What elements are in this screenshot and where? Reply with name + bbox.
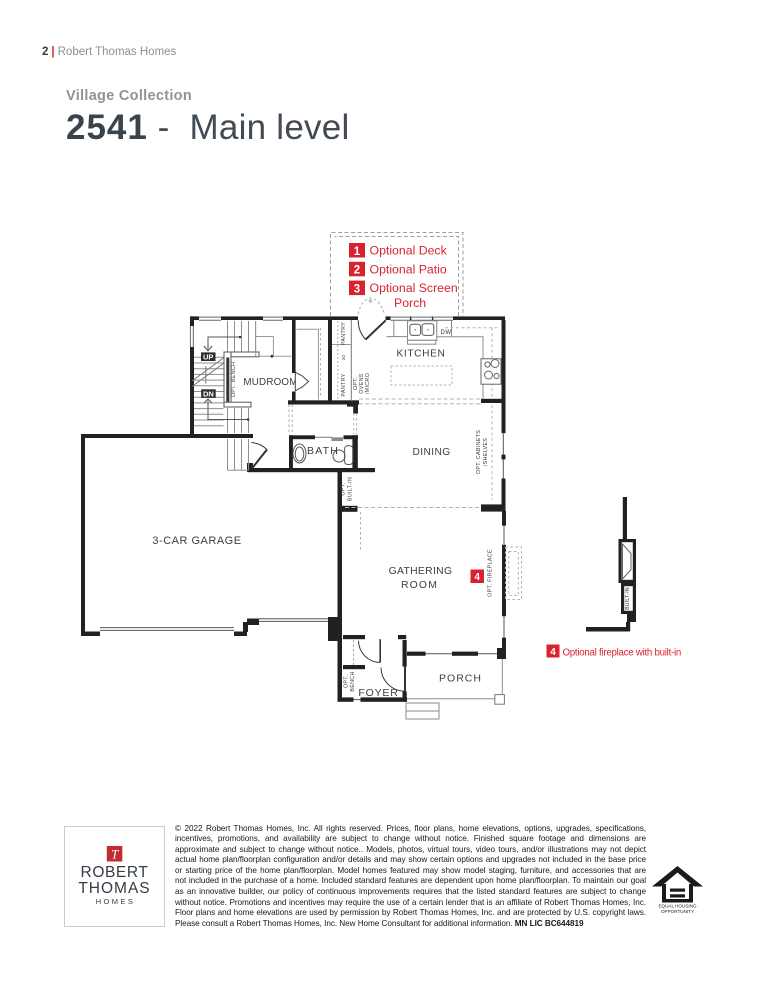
svg-text:UP: UP: [203, 353, 213, 362]
svg-text:PANTRY: PANTRY: [341, 373, 347, 396]
svg-text:PANTRY: PANTRY: [341, 322, 347, 345]
svg-text:4: 4: [550, 647, 556, 658]
svg-text:DW: DW: [441, 330, 452, 336]
svg-text:/MICRO: /MICRO: [365, 373, 371, 394]
svg-text:EQUAL HOUSING: EQUAL HOUSING: [658, 904, 697, 909]
svg-text:GATHERING: GATHERING: [389, 566, 453, 577]
svg-text:Optional fireplace with built-: Optional fireplace with built-in: [563, 647, 682, 658]
svg-text:FOYER: FOYER: [358, 687, 398, 699]
svg-text:/SHELVES: /SHELVES: [483, 438, 489, 466]
svg-text:OPT. FIREPLACE: OPT. FIREPLACE: [488, 549, 494, 597]
svg-text:OPT. BENCH: OPT. BENCH: [231, 362, 237, 397]
svg-text:OPT. CABINETS: OPT. CABINETS: [476, 430, 482, 474]
svg-text:3-CAR GARAGE: 3-CAR GARAGE: [152, 535, 241, 547]
svg-text:BATH: BATH: [307, 445, 339, 457]
svg-text:DINING: DINING: [412, 447, 450, 458]
svg-text:KITCHEN: KITCHEN: [397, 349, 446, 360]
svg-text:OPT.: OPT.: [341, 482, 347, 495]
svg-text:30: 30: [341, 355, 346, 361]
svg-text:Porch: Porch: [394, 296, 426, 310]
svg-text:BUILT-IN: BUILT-IN: [348, 477, 354, 501]
svg-text:OPT.: OPT.: [344, 675, 350, 688]
svg-text:PORCH: PORCH: [439, 673, 482, 685]
svg-text:ROOM: ROOM: [401, 580, 438, 591]
svg-text:DN: DN: [203, 389, 214, 398]
svg-text:4: 4: [474, 572, 480, 583]
svg-text:1: 1: [354, 246, 361, 258]
svg-text:Optional Patio: Optional Patio: [370, 262, 447, 276]
svg-text:BUILT-IN: BUILT-IN: [625, 587, 631, 610]
svg-text:Optional Deck: Optional Deck: [370, 244, 448, 258]
svg-text:OPPORTUNITY: OPPORTUNITY: [661, 909, 694, 914]
svg-text:BENCH: BENCH: [350, 671, 356, 691]
svg-text:2: 2: [354, 265, 360, 277]
svg-text:3: 3: [354, 283, 360, 295]
svg-text:Optional Screen: Optional Screen: [370, 281, 458, 295]
svg-text:MUDROOM: MUDROOM: [243, 377, 297, 388]
